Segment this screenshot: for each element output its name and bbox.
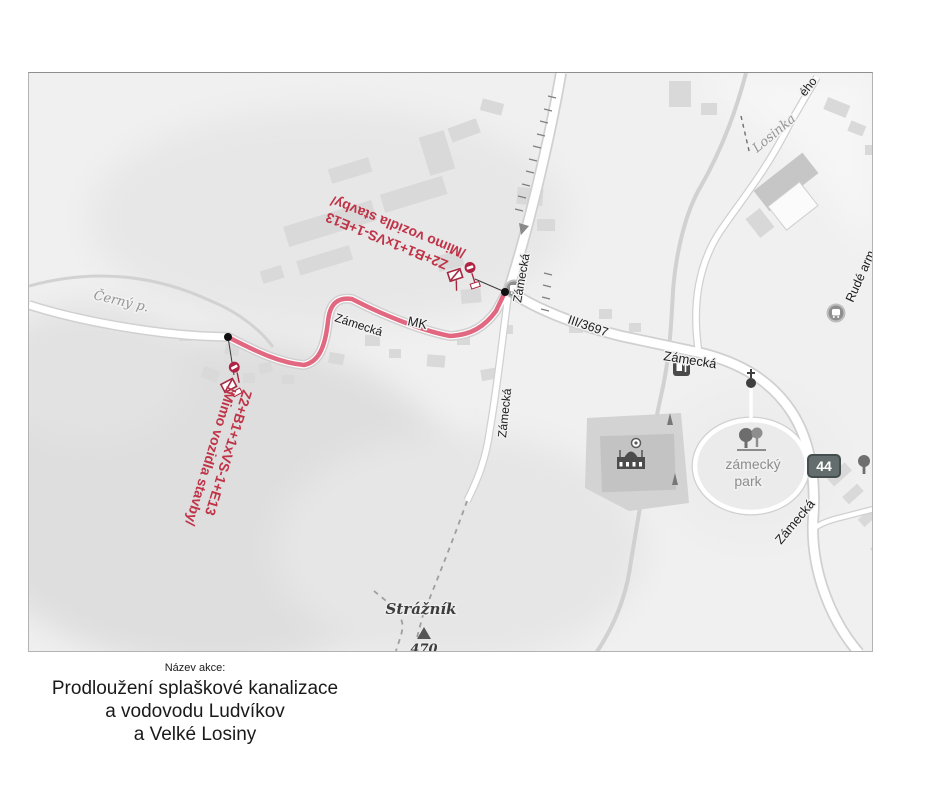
hill-elevation-label: 470 (410, 642, 437, 652)
park-label-line2: park (734, 473, 762, 489)
road-badge-44: 44 (808, 455, 840, 477)
viewpoint-icon (632, 439, 641, 448)
park-label-line1: zámecký (725, 456, 780, 472)
caption-heading: Název akce: (20, 662, 370, 674)
caption-line1: Prodloužení splaškové kanalizace (20, 677, 370, 700)
document-page: III/3697 Zámecká Zámecká MK Zámecká Záme… (0, 0, 940, 788)
road-badge-number: 44 (816, 458, 832, 474)
caption-line2: a vodovodu Ludvíkov (20, 700, 370, 723)
map-canvas: III/3697 Zámecká Zámecká MK Zámecká Záme… (29, 73, 873, 652)
route-endpoint-dot (501, 288, 509, 296)
caption-line3: a Velké Losiny (20, 723, 370, 746)
title-block: Název akce: Prodloužení splaškové kanali… (20, 662, 370, 746)
route-endpoint-dot (224, 333, 232, 341)
situation-map: III/3697 Zámecká Zámecká MK Zámecká Záme… (28, 72, 873, 652)
bus-stop-icon (828, 305, 845, 322)
hill-label-straznik: Strážník (386, 600, 457, 618)
